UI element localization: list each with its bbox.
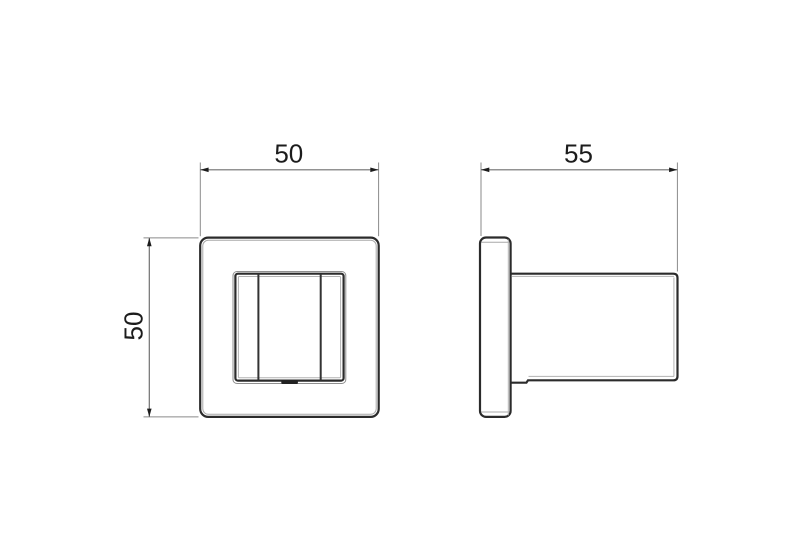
svg-text:50: 50 (119, 312, 149, 341)
svg-text:50: 50 (274, 138, 303, 168)
svg-text:55: 55 (564, 138, 593, 168)
